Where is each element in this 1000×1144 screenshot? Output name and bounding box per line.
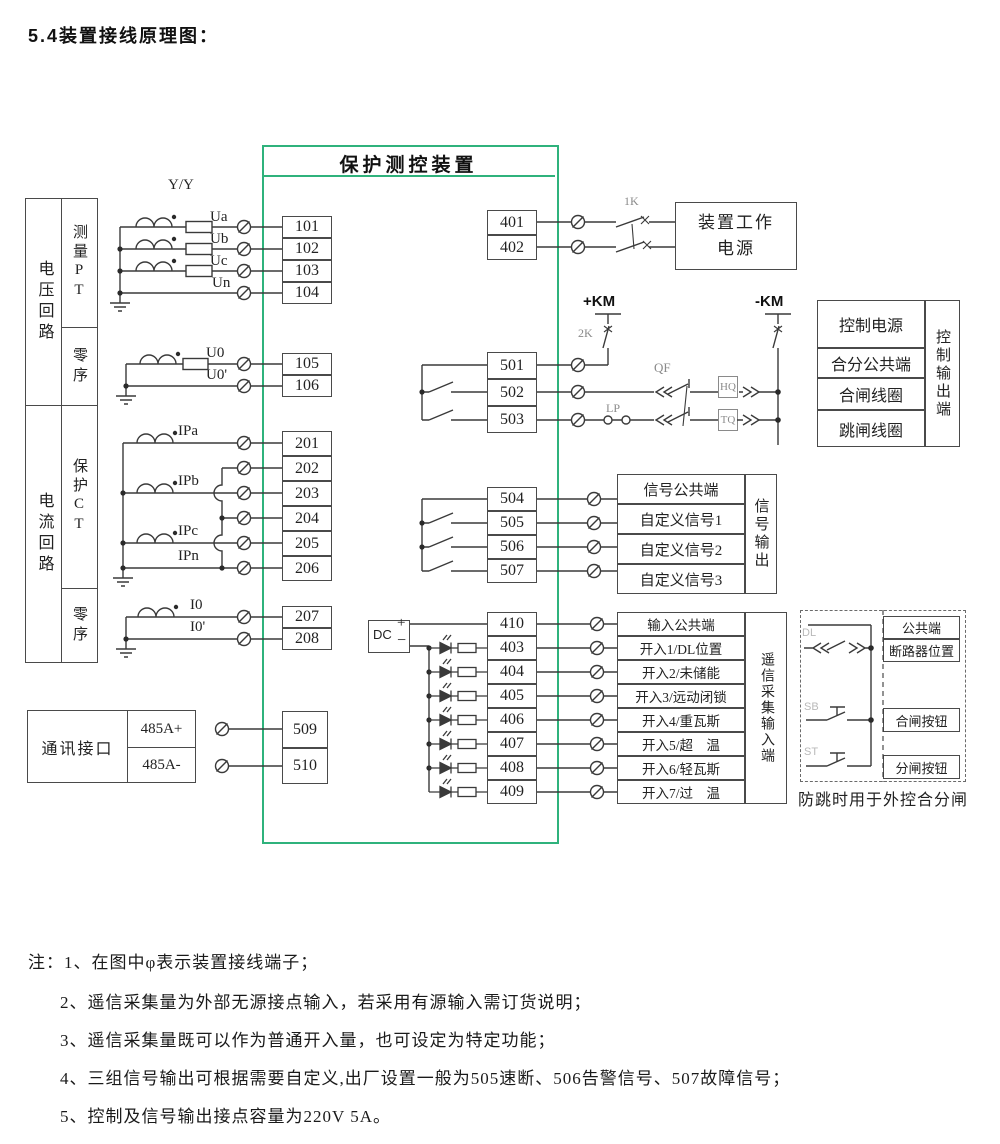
terminal-504: 504 xyxy=(487,487,537,511)
external-box-caption: 防跳时用于外控合分闸 xyxy=(798,786,968,810)
dc-label: DC xyxy=(373,627,392,642)
u0-prime-label: U0' xyxy=(206,367,227,384)
dc-minus-label: − xyxy=(397,632,406,650)
terminal-501: 501 xyxy=(487,352,537,379)
close-button-sb-label: SB xyxy=(804,701,819,713)
comm-interface-label: 通讯接口 xyxy=(27,710,128,783)
remote-input-row-0: 输入公共端 xyxy=(617,612,745,636)
terminal-208: 208 xyxy=(282,628,332,650)
remote-input-row-2: 开入2/未储能 xyxy=(617,660,745,684)
uc-label: Uc xyxy=(210,253,228,270)
ipa-label: IPa xyxy=(178,423,198,440)
ipc-label: IPc xyxy=(178,523,198,540)
switch-1k-label: 1K xyxy=(624,194,639,209)
protect-ct-label: 保护CT xyxy=(61,405,98,589)
signal-output-row-1: 自定义信号1 xyxy=(617,504,745,534)
closing-coil-hq-box: HQ xyxy=(718,376,738,398)
ub-label: Ub xyxy=(210,231,228,248)
terminal-405: 405 xyxy=(487,684,537,708)
terminal-403: 403 xyxy=(487,636,537,660)
terminal-101: 101 xyxy=(282,216,332,238)
terminal-408: 408 xyxy=(487,756,537,780)
terminal-103: 103 xyxy=(282,260,332,282)
terminal-404: 404 xyxy=(487,660,537,684)
km-minus-rail-label: -KM xyxy=(755,293,783,310)
terminal-206: 206 xyxy=(282,556,332,581)
km-plus-rail-label: +KM xyxy=(583,293,615,310)
current-zero-seq-label: 零序 xyxy=(61,588,98,663)
switch-2k-label: 2K xyxy=(578,326,593,341)
open-button-st-label: ST xyxy=(804,746,818,758)
ipb-label: IPb xyxy=(178,473,199,490)
tripping-coil-tq-box: TQ xyxy=(718,409,738,431)
terminal-401: 401 xyxy=(487,210,537,235)
terminal-407: 407 xyxy=(487,732,537,756)
remote-input-row-3: 开入3/远动闭锁 xyxy=(617,684,745,708)
remote-input-row-6: 开入6/轻瓦斯 xyxy=(617,756,745,780)
note-line-5: 5、控制及信号输出接点容量为220V 5A。 xyxy=(60,1102,391,1127)
terminal-402: 402 xyxy=(487,235,537,260)
pt-ratio-label: Y/Y xyxy=(168,177,194,194)
dl-contact-label: DL xyxy=(802,627,816,639)
terminal-106: 106 xyxy=(282,375,332,397)
terminal-205: 205 xyxy=(282,531,332,556)
remote-input-row-1: 开入1/DL位置 xyxy=(617,636,745,660)
signal-output-row-0: 信号公共端 xyxy=(617,474,745,504)
terminal-102: 102 xyxy=(282,238,332,260)
control-output-row-2: 合闸线圈 xyxy=(817,378,925,410)
signal-output-row-2: 自定义信号2 xyxy=(617,534,745,564)
terminal-410: 410 xyxy=(487,612,537,636)
note-line-3: 3、遥信采集量既可以作为普通开入量，也可设定为特定功能； xyxy=(60,1026,556,1051)
external-box-cell-0: 公共端 xyxy=(883,616,960,639)
remote-input-row-5: 开入5/超 温 xyxy=(617,732,745,756)
terminal-409: 409 xyxy=(487,780,537,804)
control-output-side-label: 控制输出端 xyxy=(925,300,960,447)
external-box-cell-1: 断路器位置 xyxy=(883,639,960,662)
ipn-label: IPn xyxy=(178,548,199,565)
terminal-203: 203 xyxy=(282,481,332,506)
device-title: 保护测控装置 xyxy=(262,150,555,177)
terminal-202: 202 xyxy=(282,456,332,481)
comm-port-485a-plus: 485A+ xyxy=(127,710,196,748)
external-box-cell-2: 合闸按钮 xyxy=(883,708,960,732)
i0-label: I0 xyxy=(190,597,203,614)
current-loop-label: 电流回路 xyxy=(25,405,62,663)
terminal-105: 105 xyxy=(282,353,332,375)
device-power-box: 装置工作 电源 xyxy=(675,202,797,270)
note-line-4: 4、三组信号输出可根据需要自定义,出厂设置一般为505速断、506告警信号、50… xyxy=(60,1064,790,1089)
remote-input-row-4: 开入4/重瓦斯 xyxy=(617,708,745,732)
control-output-row-1: 合分公共端 xyxy=(817,348,925,378)
note-line-2: 2、遥信采集量为外部无源接点输入，若采用有源输入需订货说明； xyxy=(60,988,592,1013)
terminal-509: 509 xyxy=(282,711,328,748)
terminal-201: 201 xyxy=(282,431,332,456)
control-output-row-0: 控制电源 xyxy=(817,300,925,348)
control-output-row-3: 跳闸线圈 xyxy=(817,410,925,447)
note-line-1: 注：1、在图中φ表示装置接线端子； xyxy=(28,948,318,973)
terminal-104: 104 xyxy=(282,282,332,304)
remote-input-row-7: 开入7/过 温 xyxy=(617,780,745,804)
wiring-diagram-page: 5.4装置接线原理图： 保护测控装置 电压回路 测量PT 零序 电流回路 保护C… xyxy=(0,0,1000,1144)
terminal-506: 506 xyxy=(487,535,537,559)
lp-link-label: LP xyxy=(606,401,620,416)
terminal-204: 204 xyxy=(282,506,332,531)
comm-port-485a-minus: 485A- xyxy=(127,747,196,783)
un-label: Un xyxy=(212,275,230,292)
ua-label: Ua xyxy=(210,209,228,226)
terminal-507: 507 xyxy=(487,559,537,583)
terminal-406: 406 xyxy=(487,708,537,732)
external-box-cell-3: 分闸按钮 xyxy=(883,755,960,779)
voltage-zero-seq-label: 零序 xyxy=(61,327,98,406)
measure-pt-label: 测量PT xyxy=(61,198,98,328)
terminal-207: 207 xyxy=(282,606,332,628)
terminal-505: 505 xyxy=(487,511,537,535)
u0-label: U0 xyxy=(206,345,224,362)
voltage-loop-label: 电压回路 xyxy=(25,198,62,406)
dc-plus-label: + xyxy=(397,615,405,632)
remote-input-side-label: 遥信采集输入端 xyxy=(745,612,787,804)
qf-contact-label: QF xyxy=(654,360,671,376)
i0-prime-label: I0' xyxy=(190,619,205,636)
signal-output-side-label: 信号输出 xyxy=(745,474,777,594)
terminal-510: 510 xyxy=(282,748,328,784)
signal-output-row-3: 自定义信号3 xyxy=(617,564,745,594)
terminal-502: 502 xyxy=(487,379,537,406)
page-title: 5.4装置接线原理图： xyxy=(28,22,219,48)
terminal-503: 503 xyxy=(487,406,537,433)
